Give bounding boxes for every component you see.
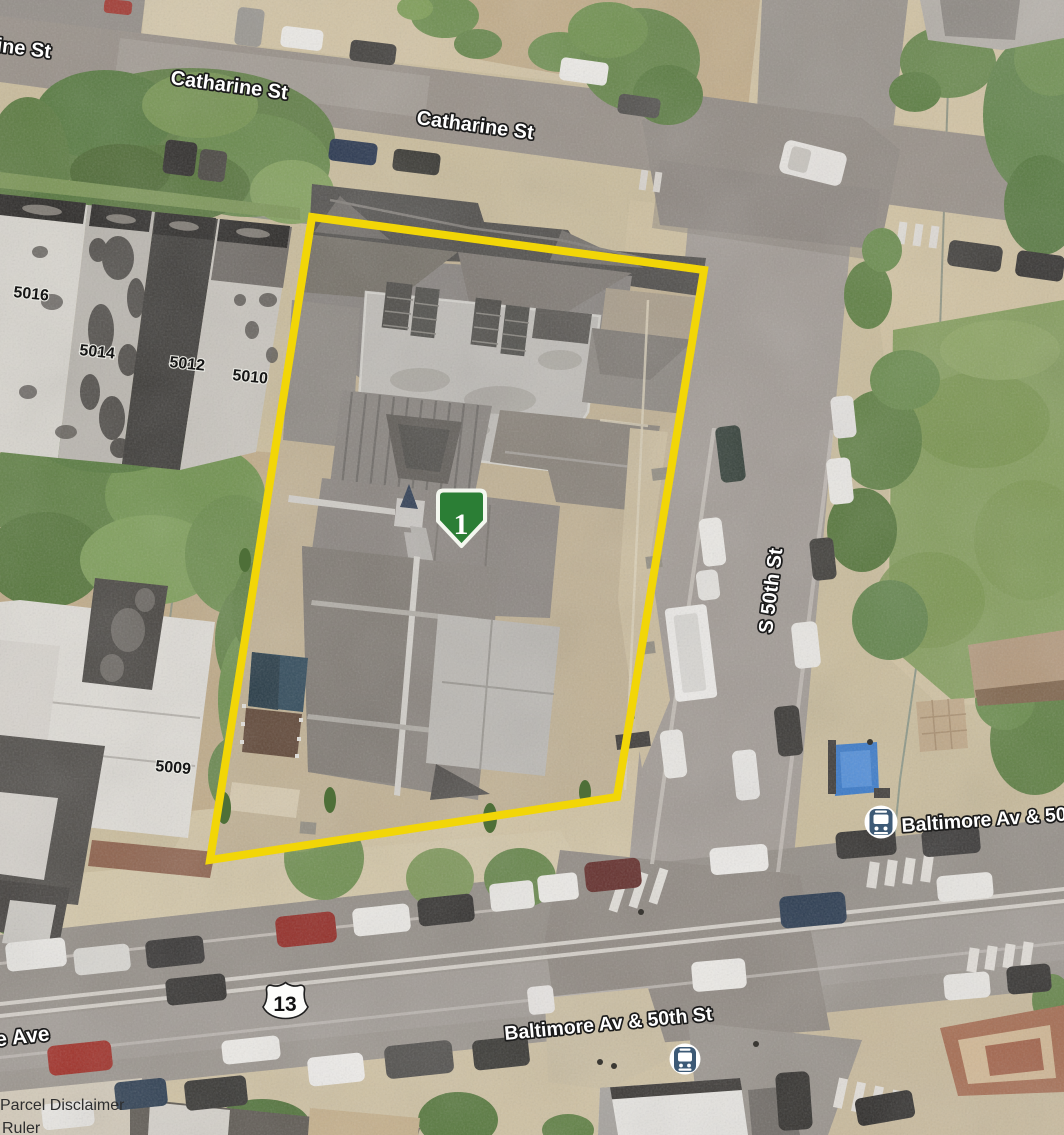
svg-text:13: 13 [273,993,296,1016]
svg-text:Ruler: Ruler [2,1120,41,1135]
svg-text:Parcel Disclaimer: Parcel Disclaimer [0,1097,125,1114]
svg-text:5009: 5009 [155,758,192,778]
svg-text:1: 1 [454,508,469,541]
